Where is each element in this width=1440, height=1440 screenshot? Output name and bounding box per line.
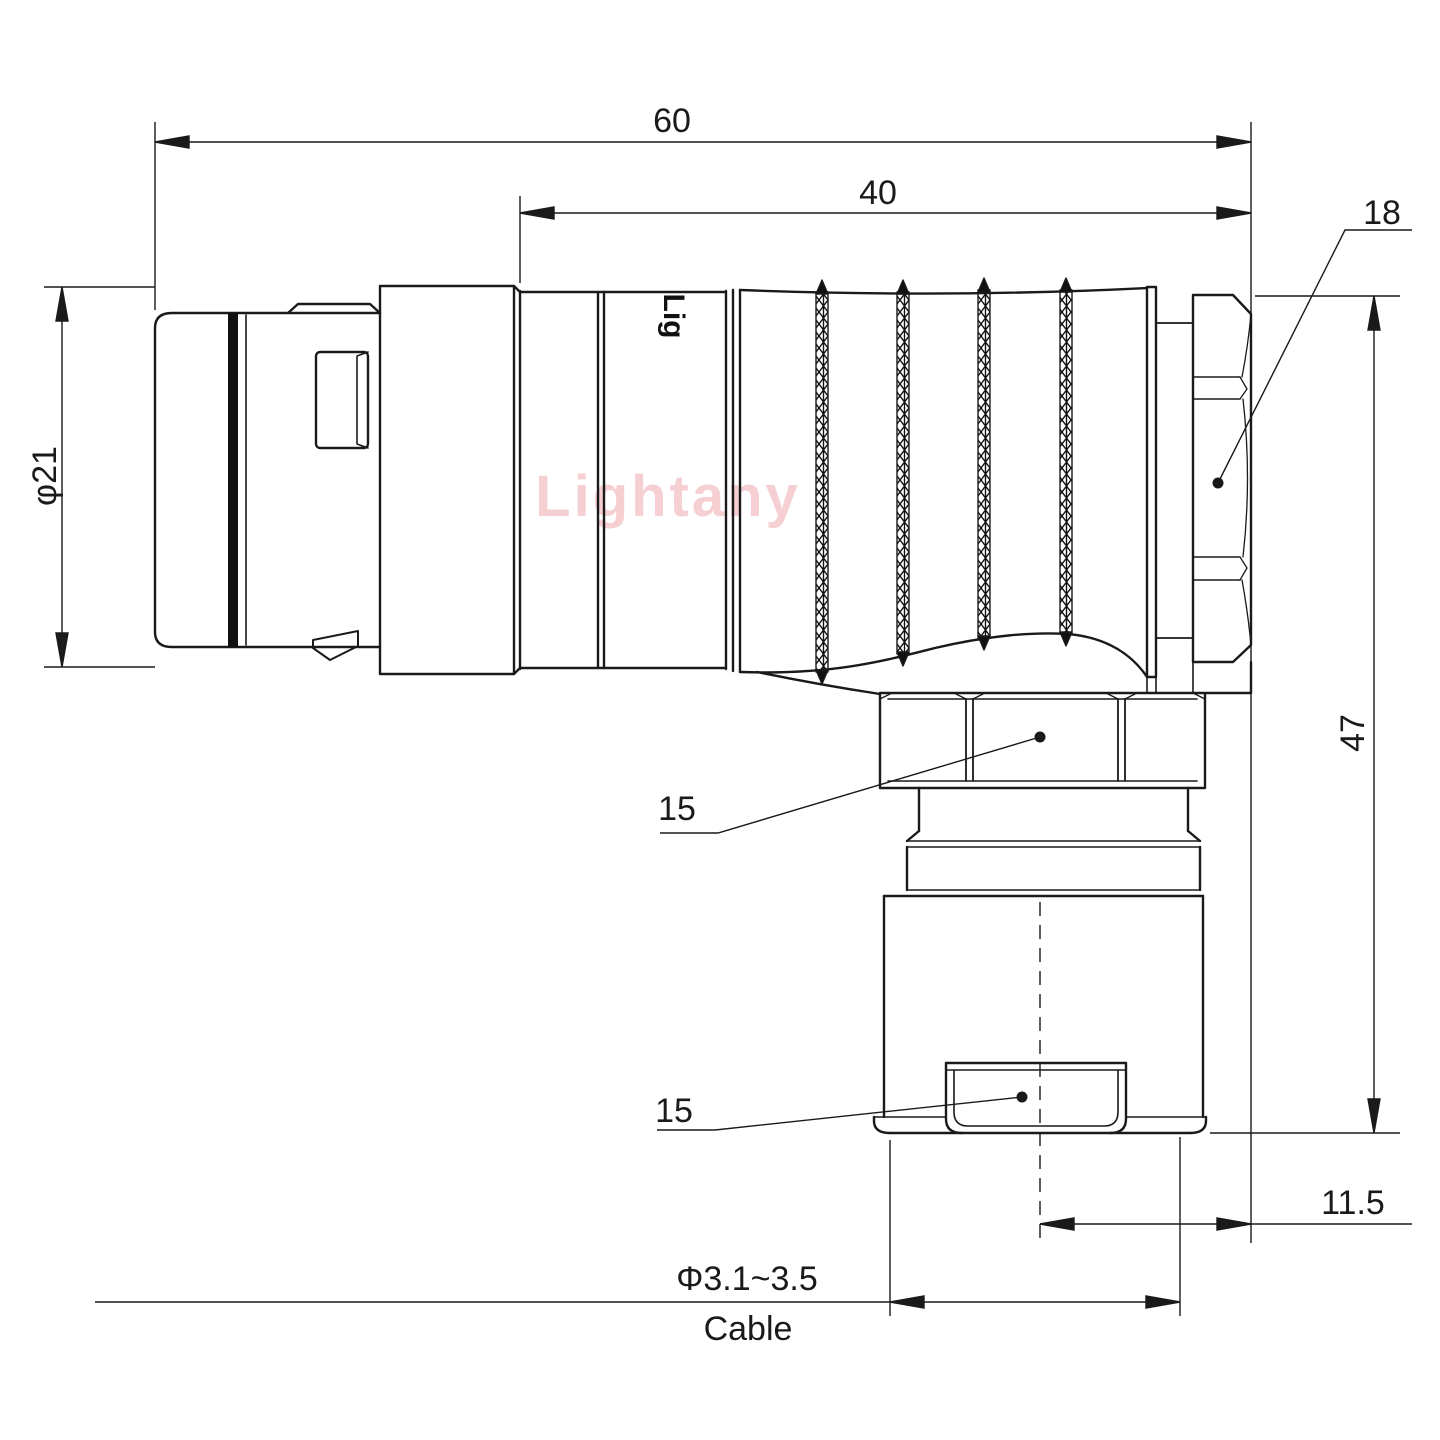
end-cap	[1147, 287, 1156, 677]
arrow-left-icon	[155, 136, 189, 148]
leader-dot	[1035, 732, 1046, 743]
leader-15-upper	[660, 732, 1046, 834]
dim-11-5-label: 11.5	[1321, 1184, 1385, 1222]
dim-18-label: 18	[1363, 194, 1401, 232]
cable-range-label: Φ3.1~3.5	[676, 1260, 818, 1298]
connector-body: Lig	[155, 278, 1251, 1133]
arrow-left-icon	[1040, 1218, 1074, 1230]
arrow-right-icon	[1217, 1218, 1251, 1230]
arrow-up-icon	[56, 287, 68, 321]
arrow-right-icon	[1217, 207, 1251, 219]
arrow-left-icon	[520, 207, 554, 219]
leader-dot	[1213, 478, 1224, 489]
leader-15-lower	[657, 1092, 1028, 1131]
dimension-labels: 60 40 18 φ21 47 15 15 11.5 Φ3.1~3.5 Cabl…	[26, 102, 1401, 1348]
bottom-latch-tab	[313, 631, 358, 660]
cable-word-label: Cable	[704, 1310, 793, 1348]
arrow-down-icon	[1368, 1099, 1380, 1133]
clamp-latch	[946, 1063, 1126, 1133]
arrow-left-icon	[890, 1296, 924, 1308]
ext-lines-cable	[890, 1137, 1180, 1316]
dim-15-upper-label: 15	[658, 790, 696, 828]
dim-60-label: 60	[653, 102, 691, 140]
locking-collar	[380, 286, 520, 674]
latch-window	[316, 352, 368, 448]
leader-18	[1213, 230, 1413, 489]
drawing-canvas: Lightany Lig	[0, 0, 1440, 1440]
arrow-right-icon	[1146, 1296, 1180, 1308]
arrow-down-icon	[56, 633, 68, 667]
dim-phi21-label: φ21	[26, 446, 64, 506]
dimension-annotations	[44, 122, 1412, 1316]
dim-60	[155, 136, 1251, 148]
knurl-bands	[816, 278, 1072, 684]
dim-40-label: 40	[859, 174, 897, 212]
dim-15-lower-label: 15	[655, 1092, 693, 1130]
front-groove-band	[228, 313, 238, 647]
leader-dot	[1017, 1092, 1028, 1103]
arrow-up-icon	[1368, 296, 1380, 330]
key-bump	[288, 304, 380, 313]
dim-cable	[95, 1296, 1180, 1308]
front-sleeve	[155, 304, 380, 660]
watermark-text: Lightany	[535, 464, 801, 529]
dim-47-label: 47	[1334, 714, 1372, 752]
cable-sleeve	[884, 788, 1203, 1117]
arrow-right-icon	[1217, 136, 1251, 148]
technical-drawing: Lightany Lig	[0, 0, 1440, 1440]
elbow	[757, 662, 1251, 694]
body-print-text: Lig	[657, 294, 690, 339]
knurled-shell	[740, 278, 1193, 684]
coupling-nut	[880, 693, 1251, 788]
back-nut	[1193, 295, 1251, 662]
neck	[1156, 323, 1193, 638]
